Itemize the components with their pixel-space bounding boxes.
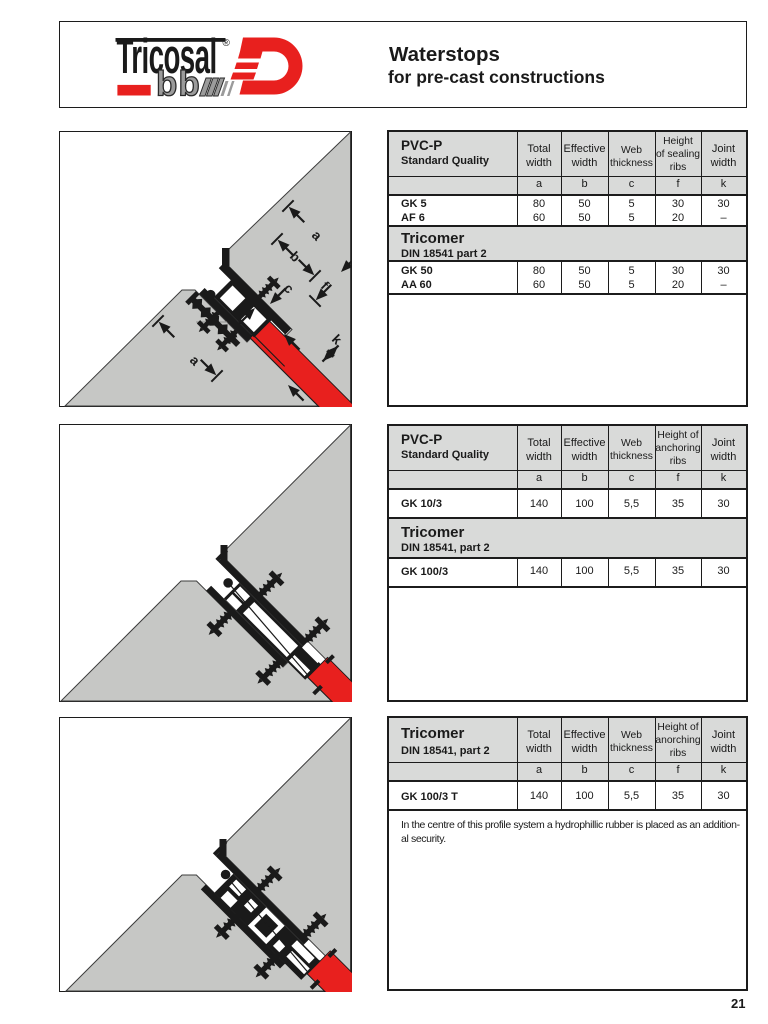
svg-text:bb: bb (156, 65, 201, 104)
svg-text:®: ® (223, 38, 231, 49)
